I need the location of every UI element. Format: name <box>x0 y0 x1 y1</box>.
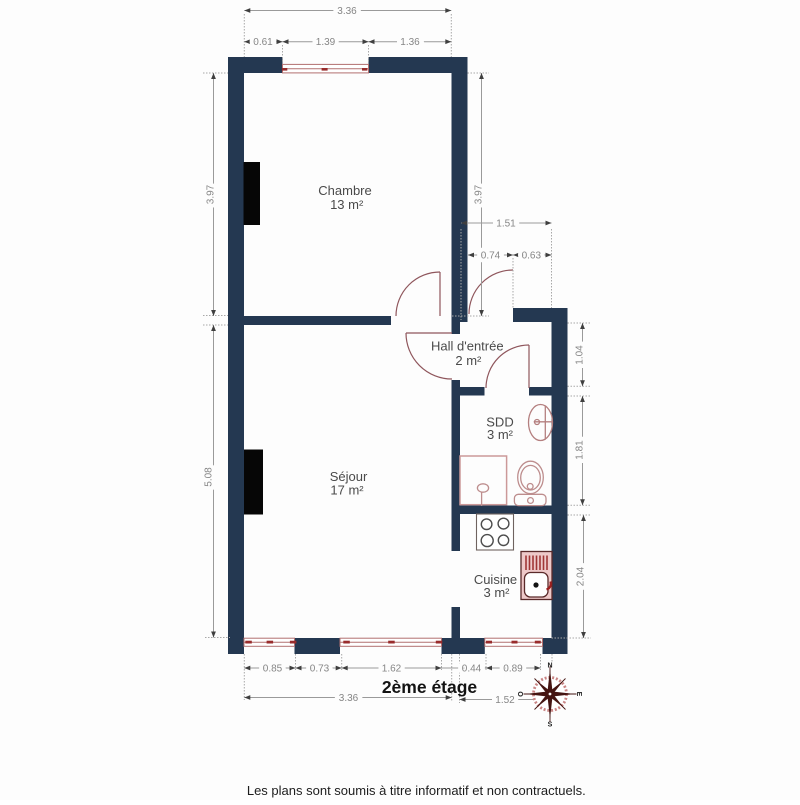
svg-text:1.52: 1.52 <box>495 695 515 706</box>
svg-text:E: E <box>575 692 582 697</box>
svg-text:3 m²: 3 m² <box>487 427 514 442</box>
svg-text:0.73: 0.73 <box>310 664 330 675</box>
svg-text:5.08: 5.08 <box>204 467 215 487</box>
svg-text:1.81: 1.81 <box>575 440 586 460</box>
svg-text:2.04: 2.04 <box>576 566 587 586</box>
svg-text:1.51: 1.51 <box>496 219 516 230</box>
svg-text:0.89: 0.89 <box>503 664 523 675</box>
svg-text:17 m²: 17 m² <box>330 483 364 498</box>
svg-text:S: S <box>548 722 553 729</box>
svg-text:2ème étage: 2ème étage <box>382 677 478 697</box>
svg-text:0.74: 0.74 <box>481 251 501 262</box>
svg-text:Chambre: Chambre <box>318 183 371 198</box>
svg-text:0.44: 0.44 <box>462 664 482 675</box>
svg-text:2 m²: 2 m² <box>455 353 482 368</box>
svg-text:1.36: 1.36 <box>400 37 420 48</box>
svg-text:N: N <box>547 663 552 670</box>
svg-text:0.63: 0.63 <box>522 251 542 262</box>
svg-text:3.97: 3.97 <box>206 184 217 204</box>
svg-text:1.39: 1.39 <box>316 37 336 48</box>
svg-text:1.62: 1.62 <box>382 664 402 675</box>
svg-text:0.61: 0.61 <box>253 37 273 48</box>
svg-text:0.85: 0.85 <box>263 664 283 675</box>
svg-text:3.97: 3.97 <box>474 184 485 204</box>
svg-text:O: O <box>518 691 525 697</box>
svg-text:3 m²: 3 m² <box>484 585 511 600</box>
svg-text:3.36: 3.36 <box>339 693 359 704</box>
svg-text:Hall d'entrée: Hall d'entrée <box>431 338 504 353</box>
svg-text:13 m²: 13 m² <box>330 197 364 212</box>
svg-text:Les plans sont soumis à titre: Les plans sont soumis à titre informatif… <box>247 783 586 798</box>
svg-text:3.36: 3.36 <box>337 6 357 17</box>
svg-text:1.04: 1.04 <box>575 345 586 365</box>
